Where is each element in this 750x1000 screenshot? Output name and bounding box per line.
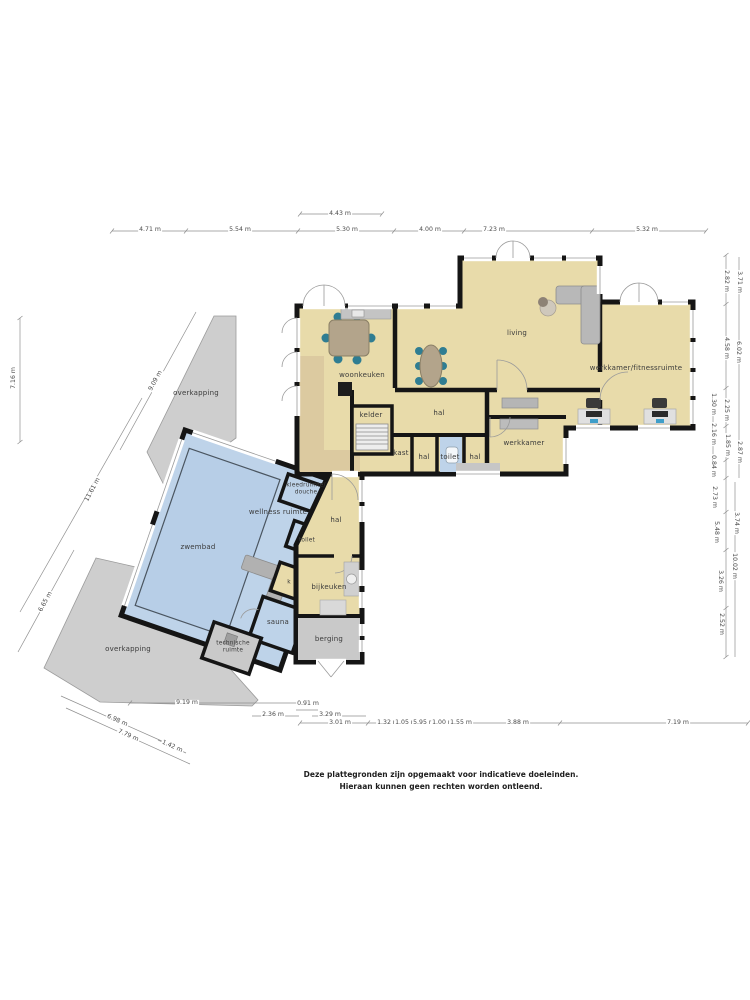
dining-table-2 [415,345,447,387]
floorplan-svg [0,0,750,1000]
sideboard [502,398,538,408]
disclaimer: Deze plattegronden zijn opgemaakt voor i… [301,769,581,792]
berging-area [298,616,360,660]
werkkamer-desk [500,419,538,429]
kelder-area [352,406,392,454]
disclaimer-line-1: Deze plattegronden zijn opgemaakt voor i… [301,769,581,781]
disclaimer-line-2: Hieraan kunnen geen rechten worden ontle… [301,781,581,793]
floorplan-canvas: woonkeukenlivingwerkkamer/fitnessruimteh… [0,0,750,1000]
